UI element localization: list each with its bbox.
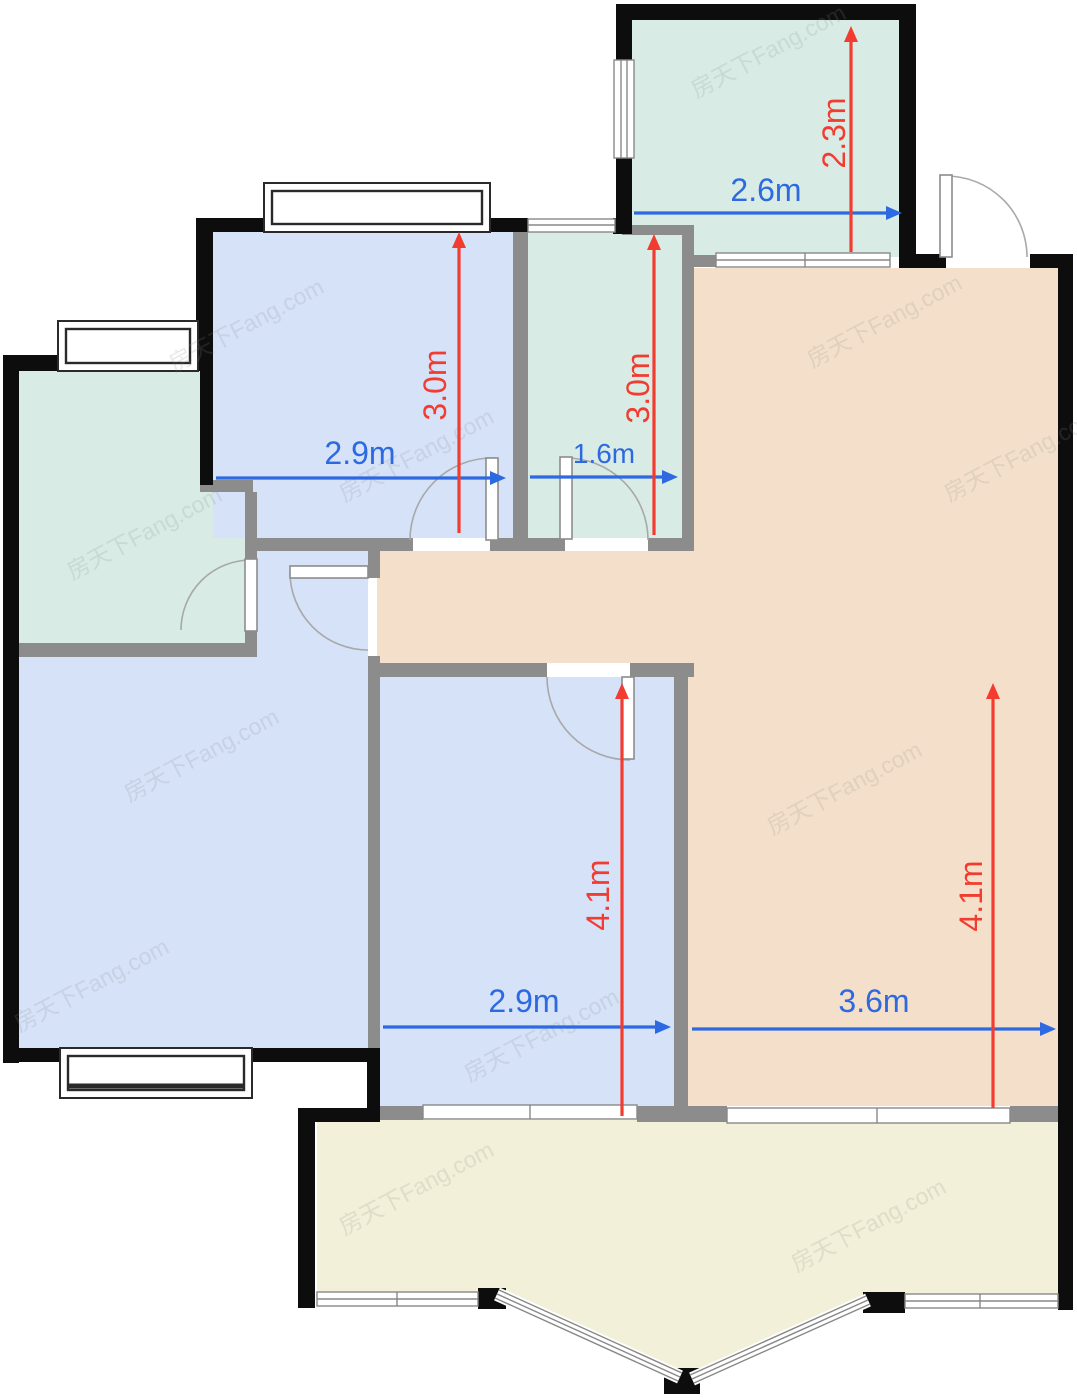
wall-segment [616, 4, 916, 20]
wall-segment [245, 630, 257, 645]
wall-segment [513, 232, 528, 538]
dim-label-bathroom-width: 1.6m [573, 438, 635, 469]
bathroom-floor [528, 232, 682, 538]
wall-segment [368, 663, 547, 677]
bathroom-door-leaf [560, 457, 572, 539]
balcony-corner-post [863, 1292, 905, 1313]
wall-segment [637, 1106, 727, 1122]
wall-segment [298, 1108, 315, 1308]
wall-segment [490, 538, 565, 551]
wall-segment [368, 547, 380, 578]
living-balcony-door [727, 1108, 1010, 1123]
dim-label-bedroom2-width: 2.9m [488, 983, 559, 1019]
floorplan-page: 房天下Fang.com 房天下Fang.com 房天下Fang.com 房天下F… [0, 0, 1077, 1400]
entry-door-leaf [940, 175, 952, 257]
wall-segment [682, 225, 694, 551]
wall-segment [19, 643, 257, 657]
dim-label-kitchen-width: 2.6m [730, 172, 801, 208]
kitchen-side-window [614, 60, 634, 158]
wall-segment [1058, 254, 1073, 1310]
bedroom-left-door-leaf [290, 566, 368, 578]
dim-label-living-depth: 4.1m [953, 860, 989, 931]
dim-label-kitchen-depth: 2.3m [816, 97, 852, 168]
bedroom-top-door-leaf [486, 458, 498, 540]
wall-segment [200, 355, 213, 485]
storage-door-leaf [245, 559, 257, 631]
wall-segment [253, 538, 413, 551]
wall-segment [3, 355, 19, 1063]
balcony-floor [317, 1120, 1058, 1380]
wall-segment [245, 492, 257, 562]
dim-label-bathroom-depth: 3.0m [620, 352, 656, 423]
dim-label-living-width: 3.6m [838, 983, 909, 1019]
dim-label-bedroom1-depth: 3.0m [417, 349, 453, 420]
entry-door-arc [946, 176, 1027, 257]
wall-segment [693, 255, 718, 267]
wall-segment [380, 1106, 423, 1120]
wall-segment [1010, 1106, 1058, 1122]
dim-label-bedroom2-depth: 4.1m [580, 859, 616, 930]
wall-segment [368, 677, 380, 1050]
wall-segment [674, 663, 688, 1106]
wall-segment [513, 218, 528, 232]
floorplan-svg: 房天下Fang.com 房天下Fang.com 房天下Fang.com 房天下F… [0, 0, 1077, 1400]
dim-label-bedroom1-width: 2.9m [324, 435, 395, 471]
wall-segment [899, 4, 916, 268]
